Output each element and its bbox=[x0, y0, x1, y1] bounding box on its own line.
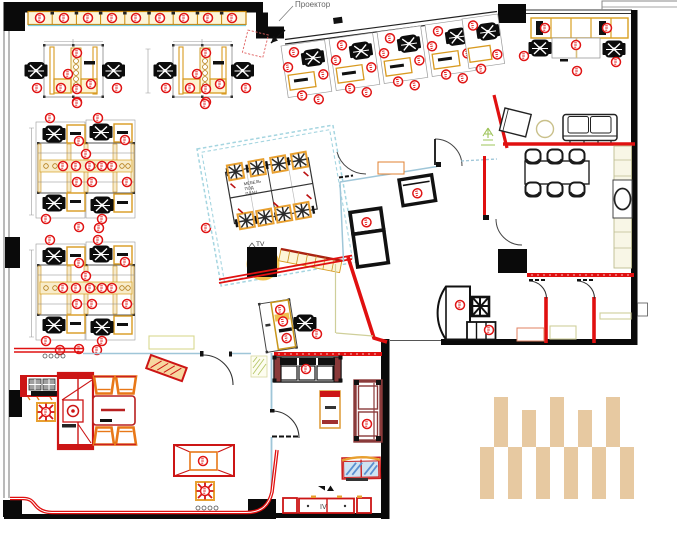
svg-text:TV: TV bbox=[256, 241, 265, 248]
svg-text:Проектор: Проектор bbox=[295, 0, 331, 9]
svg-text:IV: IV bbox=[320, 504, 327, 511]
